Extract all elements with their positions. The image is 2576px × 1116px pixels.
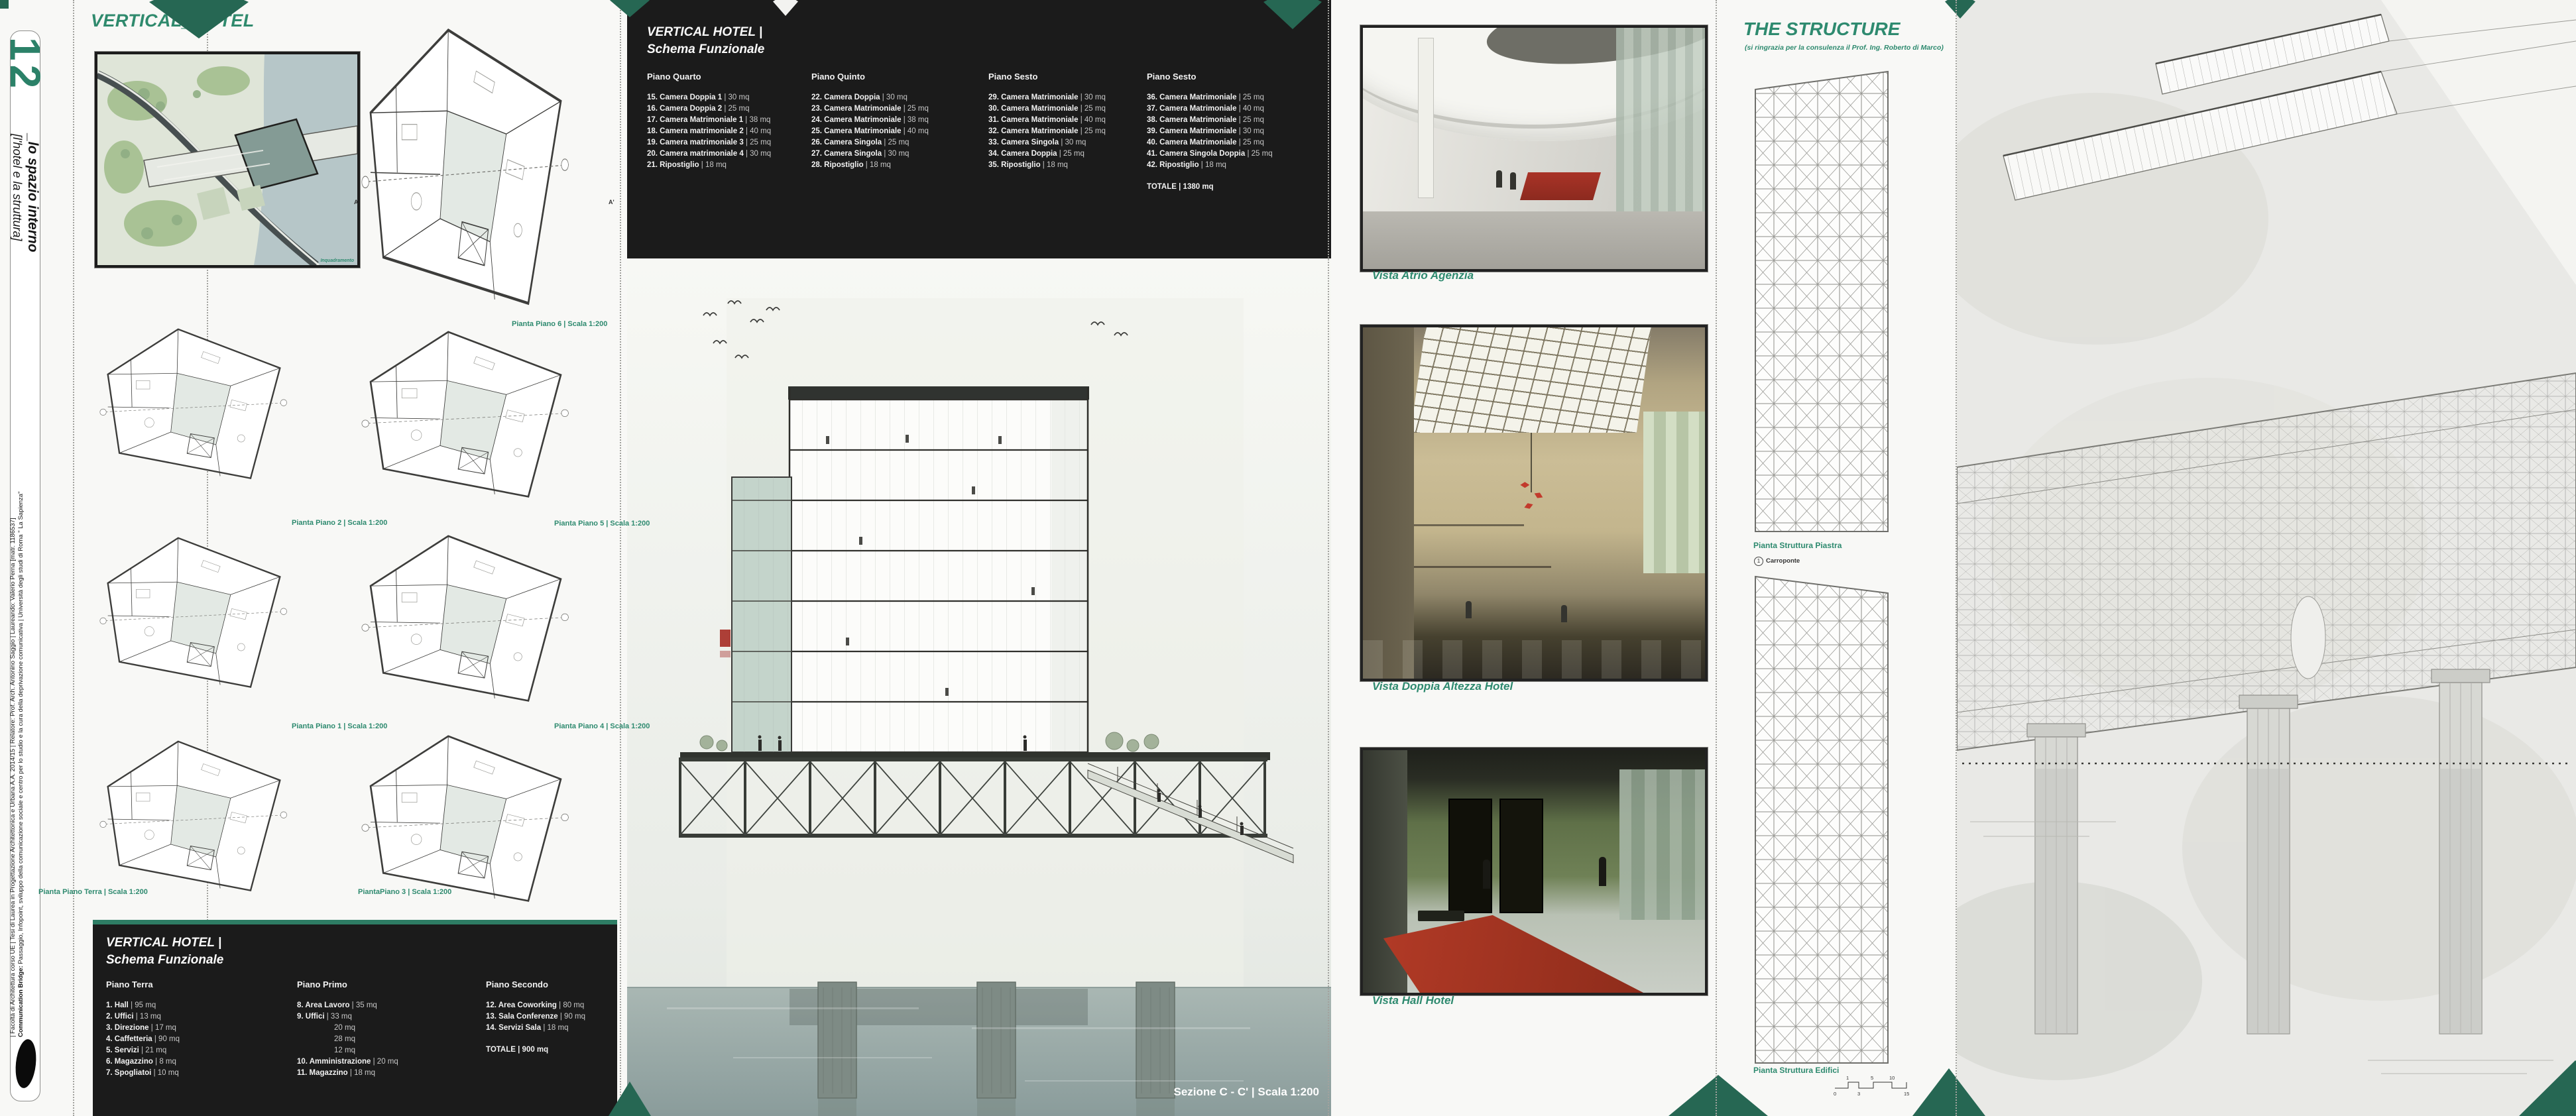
list-item: 36. Camera Matrimoniale | 25 mq [1147,92,1273,103]
list-item: 34. Camera Doppia | 25 mq [988,148,1106,160]
fold-line [73,0,74,1116]
credit-line-2: | Facoltà di Architettura corso UE | Tes… [9,411,17,1037]
list-item: 23. Camera Matrimoniale | 25 mq [811,103,929,115]
figure [1561,605,1567,622]
list-item: 3. Direzione | 17 mq [106,1023,180,1034]
struttura-legend: 1Carroponte [1754,557,1800,566]
struttura-piastra-drawing [1752,70,1890,533]
figure [1466,601,1472,618]
plan-label-piano-terra: Pianta Piano Terra | Scala 1:200 [38,888,148,896]
elevator-door [1499,799,1543,913]
plan-label-piano-1: Pianta Piano 1 | Scala 1:200 [292,722,387,730]
corner-chip [0,0,9,9]
list-item: 28. Ripostiglio | 18 mq [811,160,929,171]
floor-plan-piano-terra [99,717,288,916]
schema-column-piano-terra: Piano Terra 1. Hall | 95 mq 2. Uffici | … [106,979,180,1079]
structural-perspective-drawing [1957,0,2576,1116]
figure [1599,857,1606,886]
scale-bar: 1 5 10 0 3 15 [1831,1074,1910,1097]
list-item: 24. Camera Matrimoniale | 38 mq [811,115,929,126]
list-item: 20. Camera matrimoniale 4 | 30 mq [647,148,771,160]
list-item: 11. Magazzino | 18 mq [297,1068,398,1079]
list-item: 9. Uffici | 33 mq [297,1011,398,1023]
list-item: 17. Camera Matrimoniale 1 | 38 mq [647,115,771,126]
list-item: 13. Sala Conferenze | 90 mq [486,1011,585,1023]
column-header: Piano Primo [297,979,398,989]
totale-row: TOTALE | 1380 mq [1147,182,1273,193]
render-hall-hotel [1360,748,1708,995]
section-marker-a-prime: A' [609,199,615,205]
list-item: 42. Ripostiglio | 18 mq [1147,160,1273,171]
list-item: 21. Ripostiglio | 18 mq [647,160,771,171]
column-header: Piano Sesto [1147,72,1273,82]
schema-funzionale-lower-panel: VERTICAL HOTEL | Schema Funzionale Piano… [93,920,617,1116]
structure-subtitle: (si ringrazia per la consulenza il Prof.… [1745,44,1944,52]
svg-text:10: 10 [1889,1075,1895,1081]
list-item: 1. Hall | 95 mq [106,1000,180,1011]
list-item: 27. Camera Singola | 30 mq [811,148,929,160]
board-series-title: _lo spazio interno [l'hotel e la struttu… [8,134,41,445]
list-item: 7. Spogliatoi | 10 mq [106,1068,180,1079]
figure [1496,170,1502,188]
schema-column-piano-sesto: Piano Sesto 29. Camera Matrimoniale | 30… [988,72,1106,171]
schema-column-piano-quarto: Piano Quarto 15. Camera Doppia 1 | 30 mq… [647,72,771,171]
schema-funzionale-upper-panel: VERTICAL HOTEL | Schema Funzionale Piano… [627,0,1331,258]
svg-text:1: 1 [1846,1075,1849,1081]
schema-column-piano-quinto: Piano Quinto 22. Camera Doppia | 30 mq 2… [811,72,929,171]
render-atrio-agenzia [1360,25,1708,272]
structure-title: THE STRUCTURE [1743,19,1900,40]
board-number: 12 [7,37,42,150]
svg-text:0: 0 [1834,1091,1836,1097]
list-item: 29. Camera Matrimoniale | 30 mq [988,92,1106,103]
sofa [1418,911,1464,921]
list-item: 33. Camera Singola | 30 mq [988,137,1106,148]
column-header: Piano Quarto [647,72,771,82]
column-header: Piano Quinto [811,72,929,82]
plan-label-piano-5: Pianta Piano 5 | Scala 1:200 [554,520,650,528]
plan-label-piano-3: PiantaPiano 3 | Scala 1:200 [358,888,451,896]
list-item: 40. Camera Matrimoniale | 25 mq [1147,137,1273,148]
fold-line [1956,0,1957,1116]
svg-text:3: 3 [1857,1091,1860,1097]
totale-row: TOTALE | 900 mq [486,1044,585,1056]
list-item: 19. Camera matrimoniale 3 | 25 mq [647,137,771,148]
struttura-piastra-label: Pianta Struttura Piastra [1753,541,1842,550]
list-item: 2. Uffici | 13 mq [106,1011,180,1023]
list-item: 4. Caffetteria | 90 mq [106,1034,180,1045]
list-item: 20 mq [297,1023,398,1034]
plan-label-piano-2: Pianta Piano 2 | Scala 1:200 [292,519,387,527]
list-item: 26. Camera Singola | 25 mq [811,137,929,148]
list-item: 18. Camera matrimoniale 2 | 40 mq [647,126,771,137]
series-subtitle: [l'hotel e la struttura] [9,134,25,445]
list-item: 32. Camera Matrimoniale | 25 mq [988,126,1106,137]
floor-plan-piano-1 [99,510,288,716]
render-caption-hall: Vista Hall Hotel [1372,994,1454,1007]
column-header: Piano Secondo [486,979,585,989]
site-plan-label: Inquadramento [320,258,354,263]
panel-title: VERTICAL HOTEL | Schema Funzionale [106,934,223,969]
list-item: 37. Camera Matrimoniale | 40 mq [1147,103,1273,115]
list-item: 39. Camera Matrimoniale | 30 mq [1147,126,1273,137]
series-title: _lo spazio interno [25,134,41,445]
list-item: 38. Camera Matrimoniale | 25 mq [1147,115,1273,126]
render-doppia-altezza [1360,325,1708,681]
list-item: 30. Camera Matrimoniale | 25 mq [988,103,1106,115]
fold-line [1716,0,1717,1116]
schema-column-piano-primo: Piano Primo 8. Area Lavoro | 35 mq 9. Uf… [297,979,398,1079]
panel-title: VERTICAL HOTEL | Schema Funzionale [647,24,764,58]
list-item: 16. Camera Doppia 2 | 25 mq [647,103,771,115]
fold-line [1328,0,1329,1116]
plan-label-piano-6: Pianta Piano 6 | Scala 1:200 [512,320,607,328]
svg-text:15: 15 [1904,1091,1909,1097]
floor-plan-piano-4 [361,521,570,717]
section-caption: Sezione C - C' | Scala 1:200 [1087,1086,1319,1099]
plan-label-piano-4: Pianta Piano 4 | Scala 1:200 [554,722,650,730]
figure [1483,860,1490,889]
list-item: 22. Camera Doppia | 30 mq [811,92,929,103]
column-header: Piano Sesto [988,72,1106,82]
list-item: 14. Servizi Sala | 18 mq [486,1023,585,1034]
list-item: 8. Area Lavoro | 35 mq [297,1000,398,1011]
list-item: 12 mq [297,1045,398,1056]
render-caption-doppia-altezza: Vista Doppia Altezza Hotel [1372,680,1513,693]
list-item: 25. Camera Matrimoniale | 40 mq [811,126,929,137]
presentation-board: 12 _lo spazio interno [l'hotel e la stru… [0,0,2576,1116]
credit-line-1: Communication Bridge: Passaggio, Infopoi… [17,411,25,1037]
site-plan-drawing [97,54,357,265]
skylight [1410,327,1651,433]
render-caption-atrio: Vista Atrio Agenzia [1372,269,1474,282]
elevator-door [1448,799,1492,913]
schema-column-piano-sesto-2: Piano Sesto 36. Camera Matrimoniale | 25… [1147,72,1273,193]
svg-text:5: 5 [1871,1075,1873,1081]
list-item: 6. Magazzino | 8 mq [106,1056,180,1068]
floor-plan-piano-6 [361,19,570,317]
panel-accent-strip [93,920,617,924]
figure [1510,172,1516,190]
floor-plan-piano-2 [99,302,288,507]
fold-line [620,0,621,1116]
list-item: 5. Servizi | 21 mq [106,1045,180,1056]
list-item: 31. Camera Matrimoniale | 40 mq [988,115,1106,126]
credits: | Facoltà di Architettura corso UE | Tes… [9,411,40,1037]
legend-number: 1 [1754,557,1763,566]
list-item: 35. Ripostiglio | 18 mq [988,160,1106,171]
schema-column-piano-secondo: Piano Secondo 12. Area Coworking | 80 mq… [486,979,585,1056]
column-header: Piano Terra [106,979,180,989]
section-marker-a: A [354,199,359,205]
struttura-edifici-label: Pianta Struttura Edifici [1753,1066,1839,1075]
list-item: 10. Amministrazione | 20 mq [297,1056,398,1068]
section-drawing [627,258,1331,1116]
site-plan-image: Inquadramento [95,52,360,268]
list-item: 41. Camera Singola Doppia | 25 mq [1147,148,1273,160]
list-item: 12. Area Coworking | 80 mq [486,1000,585,1011]
list-item: 28 mq [297,1034,398,1045]
struttura-edifici-drawing [1752,573,1890,1065]
floor-plan-piano-5 [361,317,570,513]
list-item: 15. Camera Doppia 1 | 30 mq [647,92,771,103]
fold-triangle [1669,1075,1768,1116]
red-desk [1519,172,1600,200]
